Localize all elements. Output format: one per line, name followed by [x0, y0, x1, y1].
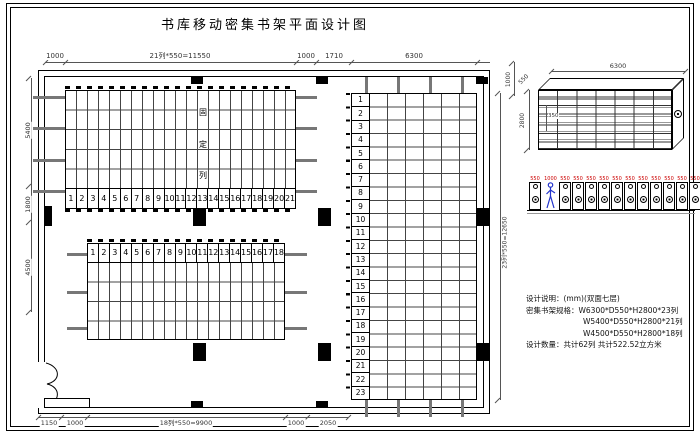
handwheel-icon: [601, 196, 608, 203]
rail-stub: [429, 77, 432, 93]
fixed-column-char: 定: [198, 140, 208, 149]
structural-column: [476, 77, 488, 84]
column-number: 15: [218, 189, 229, 208]
column-number: 5: [131, 244, 142, 262]
dim-label-vertical: 1800: [21, 184, 35, 224]
column-number: 1: [66, 189, 76, 208]
column-number: 14: [207, 189, 218, 208]
rail-stub: [285, 327, 307, 330]
rail-stub: [296, 190, 317, 193]
crank-icon: [654, 184, 659, 189]
column-number: 19: [262, 189, 273, 208]
tick-strip: [65, 86, 296, 89]
row-number: 6: [352, 160, 369, 173]
row-number: 12: [352, 240, 369, 253]
section-shelf-unit: 550: [676, 176, 688, 210]
handwheel-icon: [614, 196, 621, 203]
dim-label: 21列*550=11550: [149, 52, 212, 60]
row-number: 7: [352, 174, 369, 187]
dim-label: 1000: [287, 419, 306, 427]
column-number: 17: [240, 189, 251, 208]
dim-line-top: [45, 62, 490, 63]
dim-label: 1000: [296, 52, 316, 60]
dim-label: 6300: [404, 52, 424, 60]
column-number: 20: [273, 189, 284, 208]
fixed-column-char: 固: [198, 108, 208, 117]
handwheel-icon: [562, 196, 569, 203]
column-number: 9: [153, 189, 164, 208]
column-number: 11: [196, 244, 207, 262]
section-shelf-unit: 550: [572, 176, 584, 210]
dim-line-shelf-pitch: [546, 105, 547, 131]
column-number: 21: [284, 189, 295, 208]
row-number: 19: [352, 333, 369, 346]
row-number: 20: [352, 347, 369, 360]
dim-label: 1000: [45, 52, 65, 60]
section-ground-line: [527, 210, 695, 211]
section-unit-box: [572, 182, 584, 210]
column-number: 4: [98, 189, 109, 208]
dim-label-vertical: 23列*550=12650: [498, 185, 512, 300]
row-number: 2: [352, 107, 369, 120]
shelf-block-middle-grid: [87, 262, 285, 340]
section-shelf-unit: 550: [598, 176, 610, 210]
dim-label: 18列*550=9900: [159, 419, 213, 427]
dim-label-vertical: 1000: [503, 62, 515, 96]
dim-label: 1150: [40, 419, 59, 427]
row-number: 9: [352, 200, 369, 213]
rail-stub: [67, 253, 87, 256]
row-number: 13: [352, 254, 369, 267]
rail-stub: [296, 96, 317, 99]
column-number: 2: [98, 244, 109, 262]
rail-stub: [365, 400, 368, 417]
row-number: 10: [352, 214, 369, 227]
handwheel-icon: [640, 196, 647, 203]
dim-line-elevation-width: [551, 71, 685, 72]
column-number: 17: [262, 244, 273, 262]
crank-icon: [589, 184, 594, 189]
section-unit-box: [559, 182, 571, 210]
column-number: 7: [131, 189, 142, 208]
crank-icon: [641, 184, 646, 189]
dim-label: 6300: [609, 62, 628, 70]
shelf-block-top-numbers: 123456789101112131415161718192021: [65, 188, 296, 209]
notes-line: 密集书架规格：W6300*D550*H2800*23列: [526, 305, 696, 317]
section-shelf-unit: 550: [624, 176, 636, 210]
column-number: 14: [229, 244, 240, 262]
column-number: 8: [164, 244, 175, 262]
section-ground-line2: [527, 213, 695, 214]
column-number: 18: [251, 189, 262, 208]
section-unit-box: [529, 182, 541, 210]
structural-column: [318, 208, 331, 226]
notes-line: 设计数量：共计62列 共计522.52立方米: [526, 339, 696, 351]
notes-line: 设计说明：(mm)(双面七层): [526, 293, 696, 305]
structural-column: [193, 343, 206, 361]
section-aisle: 1000: [542, 176, 559, 210]
dim-label: 1000: [66, 419, 85, 427]
column-number: 6: [142, 244, 153, 262]
section-shelf-unit: 550: [689, 176, 700, 210]
row-number: 3: [352, 121, 369, 134]
section-unit-box: [598, 182, 610, 210]
person-figure-icon: [544, 182, 557, 209]
structural-column: [477, 343, 489, 361]
row-number: 1: [352, 94, 369, 107]
section-shelf-unit: 550: [650, 176, 662, 210]
handwheel-icon: [653, 196, 660, 203]
drawing-title: 书库移动密集书架平面设计图: [35, 14, 495, 33]
handwheel-icon: [532, 196, 539, 203]
row-number: 5: [352, 147, 369, 160]
column-number: 11: [175, 189, 186, 208]
column-number: 15: [240, 244, 251, 262]
crank-icon: [563, 184, 568, 189]
column-number: 16: [229, 189, 240, 208]
handwheel-icon: [674, 110, 682, 118]
section-unit-box: [689, 182, 700, 210]
column-number: 6: [120, 189, 131, 208]
crank-icon: [533, 184, 538, 189]
structural-column: [44, 206, 52, 226]
column-number: 16: [251, 244, 262, 262]
crank-icon: [615, 184, 620, 189]
row-number: 8: [352, 187, 369, 200]
column-number: 12: [207, 244, 218, 262]
column-number: 12: [185, 189, 196, 208]
column-number: 18: [273, 244, 284, 262]
rail-stub: [285, 253, 307, 256]
column-number: 1: [88, 244, 98, 262]
section-unit-box: [637, 182, 649, 210]
column-number: 3: [87, 189, 98, 208]
column-number: 8: [142, 189, 153, 208]
column-number: 5: [109, 189, 120, 208]
entry-step: [44, 398, 90, 408]
rail-stub: [461, 400, 464, 417]
section-unit-box: [585, 182, 597, 210]
handwheel-icon: [679, 196, 686, 203]
crank-icon: [628, 184, 633, 189]
rail-stub: [296, 127, 317, 130]
rail-stub: [67, 327, 87, 330]
rail-stub: [365, 77, 368, 93]
column-number: 10: [164, 189, 175, 208]
handwheel-icon: [666, 196, 673, 203]
dim-label-vertical: 5400: [21, 110, 35, 150]
shelf-block-right-numbers: 1234567891011121314151617181920212223: [351, 93, 370, 400]
column-number: 9: [175, 244, 186, 262]
notes-line: W5400*D550*H2800*21列: [526, 316, 696, 328]
rail-stub: [33, 96, 65, 99]
row-number: 15: [352, 280, 369, 293]
rail-stub: [397, 400, 400, 417]
row-number: 16: [352, 293, 369, 306]
row-number: 14: [352, 267, 369, 280]
dim-label: 1710: [324, 52, 344, 60]
structural-column: [191, 77, 203, 84]
row-number: 23: [352, 387, 369, 399]
shelf-block-top-grid: [65, 90, 296, 189]
shelf-block-middle-numbers: 123456789101112131415161718: [87, 243, 285, 263]
elevation-front-grid: [538, 90, 672, 150]
section-unit-box: [663, 182, 675, 210]
rail-stub: [33, 159, 65, 162]
notes-line: W4500*D550*H2800*18列: [526, 328, 696, 340]
rail-stub: [33, 190, 65, 193]
section-unit-box: [676, 182, 688, 210]
crank-icon: [602, 184, 607, 189]
section-shelf-unit: 550: [585, 176, 597, 210]
fixed-column-label: 固定列: [197, 108, 209, 180]
handwheel-icon: [575, 196, 582, 203]
shelf-block-right-grid: [369, 93, 477, 400]
rail-stub: [461, 77, 464, 93]
column-number: 7: [153, 244, 164, 262]
column-number: 13: [196, 189, 207, 208]
dim-label-shelf-pitch: 350: [548, 113, 559, 119]
handwheel-icon: [627, 196, 634, 203]
structural-column: [316, 401, 328, 408]
tick-strip: [87, 239, 285, 242]
column-number: 2: [76, 189, 87, 208]
rail-stub: [67, 291, 87, 294]
column-number: 10: [185, 244, 196, 262]
dim-line-elevation-height: [529, 90, 530, 150]
structural-column: [477, 208, 489, 226]
crank-icon: [667, 184, 672, 189]
row-number: 18: [352, 320, 369, 333]
elevation-top-face: [538, 78, 684, 90]
row-number: 4: [352, 134, 369, 147]
handwheel-icon: [588, 196, 595, 203]
column-number: 3: [109, 244, 120, 262]
dim-label-vertical: 4500: [21, 247, 35, 287]
section-shelf-unit: 550: [637, 176, 649, 210]
structural-column: [316, 77, 328, 84]
section-shelf-unit: 550: [663, 176, 675, 210]
structural-column: [191, 401, 203, 408]
section-unit-box: [624, 182, 636, 210]
column-number: 4: [120, 244, 131, 262]
crank-icon: [693, 184, 698, 189]
column-number: 13: [218, 244, 229, 262]
row-number: 21: [352, 360, 369, 373]
row-number: 22: [352, 373, 369, 386]
rail-stub: [285, 291, 307, 294]
handwheel-icon: [692, 196, 699, 203]
section-shelf-unit: 550: [611, 176, 623, 210]
tick-strip: [346, 93, 350, 400]
section-unit-box: [611, 182, 623, 210]
dim-label-vertical: 2800: [517, 100, 529, 140]
rail-stub: [429, 400, 432, 417]
dim-label: 2050: [319, 419, 338, 427]
row-number: 17: [352, 307, 369, 320]
fixed-column-char: 列: [198, 171, 208, 180]
crank-icon: [576, 184, 581, 189]
row-number: 11: [352, 227, 369, 240]
rail-stub: [397, 77, 400, 93]
design-notes: 设计说明：(mm)(双面七层) 密集书架规格：W6300*D550*H2800*…: [526, 293, 696, 351]
rail-stub: [296, 159, 317, 162]
section-shelf-unit: 550: [559, 176, 571, 210]
rail-stub: [33, 127, 65, 130]
structural-column: [318, 343, 331, 361]
tick-strip: [65, 209, 296, 212]
crank-icon: [680, 184, 685, 189]
section-shelf-unit: 550: [529, 176, 541, 210]
section-unit-box: [650, 182, 662, 210]
